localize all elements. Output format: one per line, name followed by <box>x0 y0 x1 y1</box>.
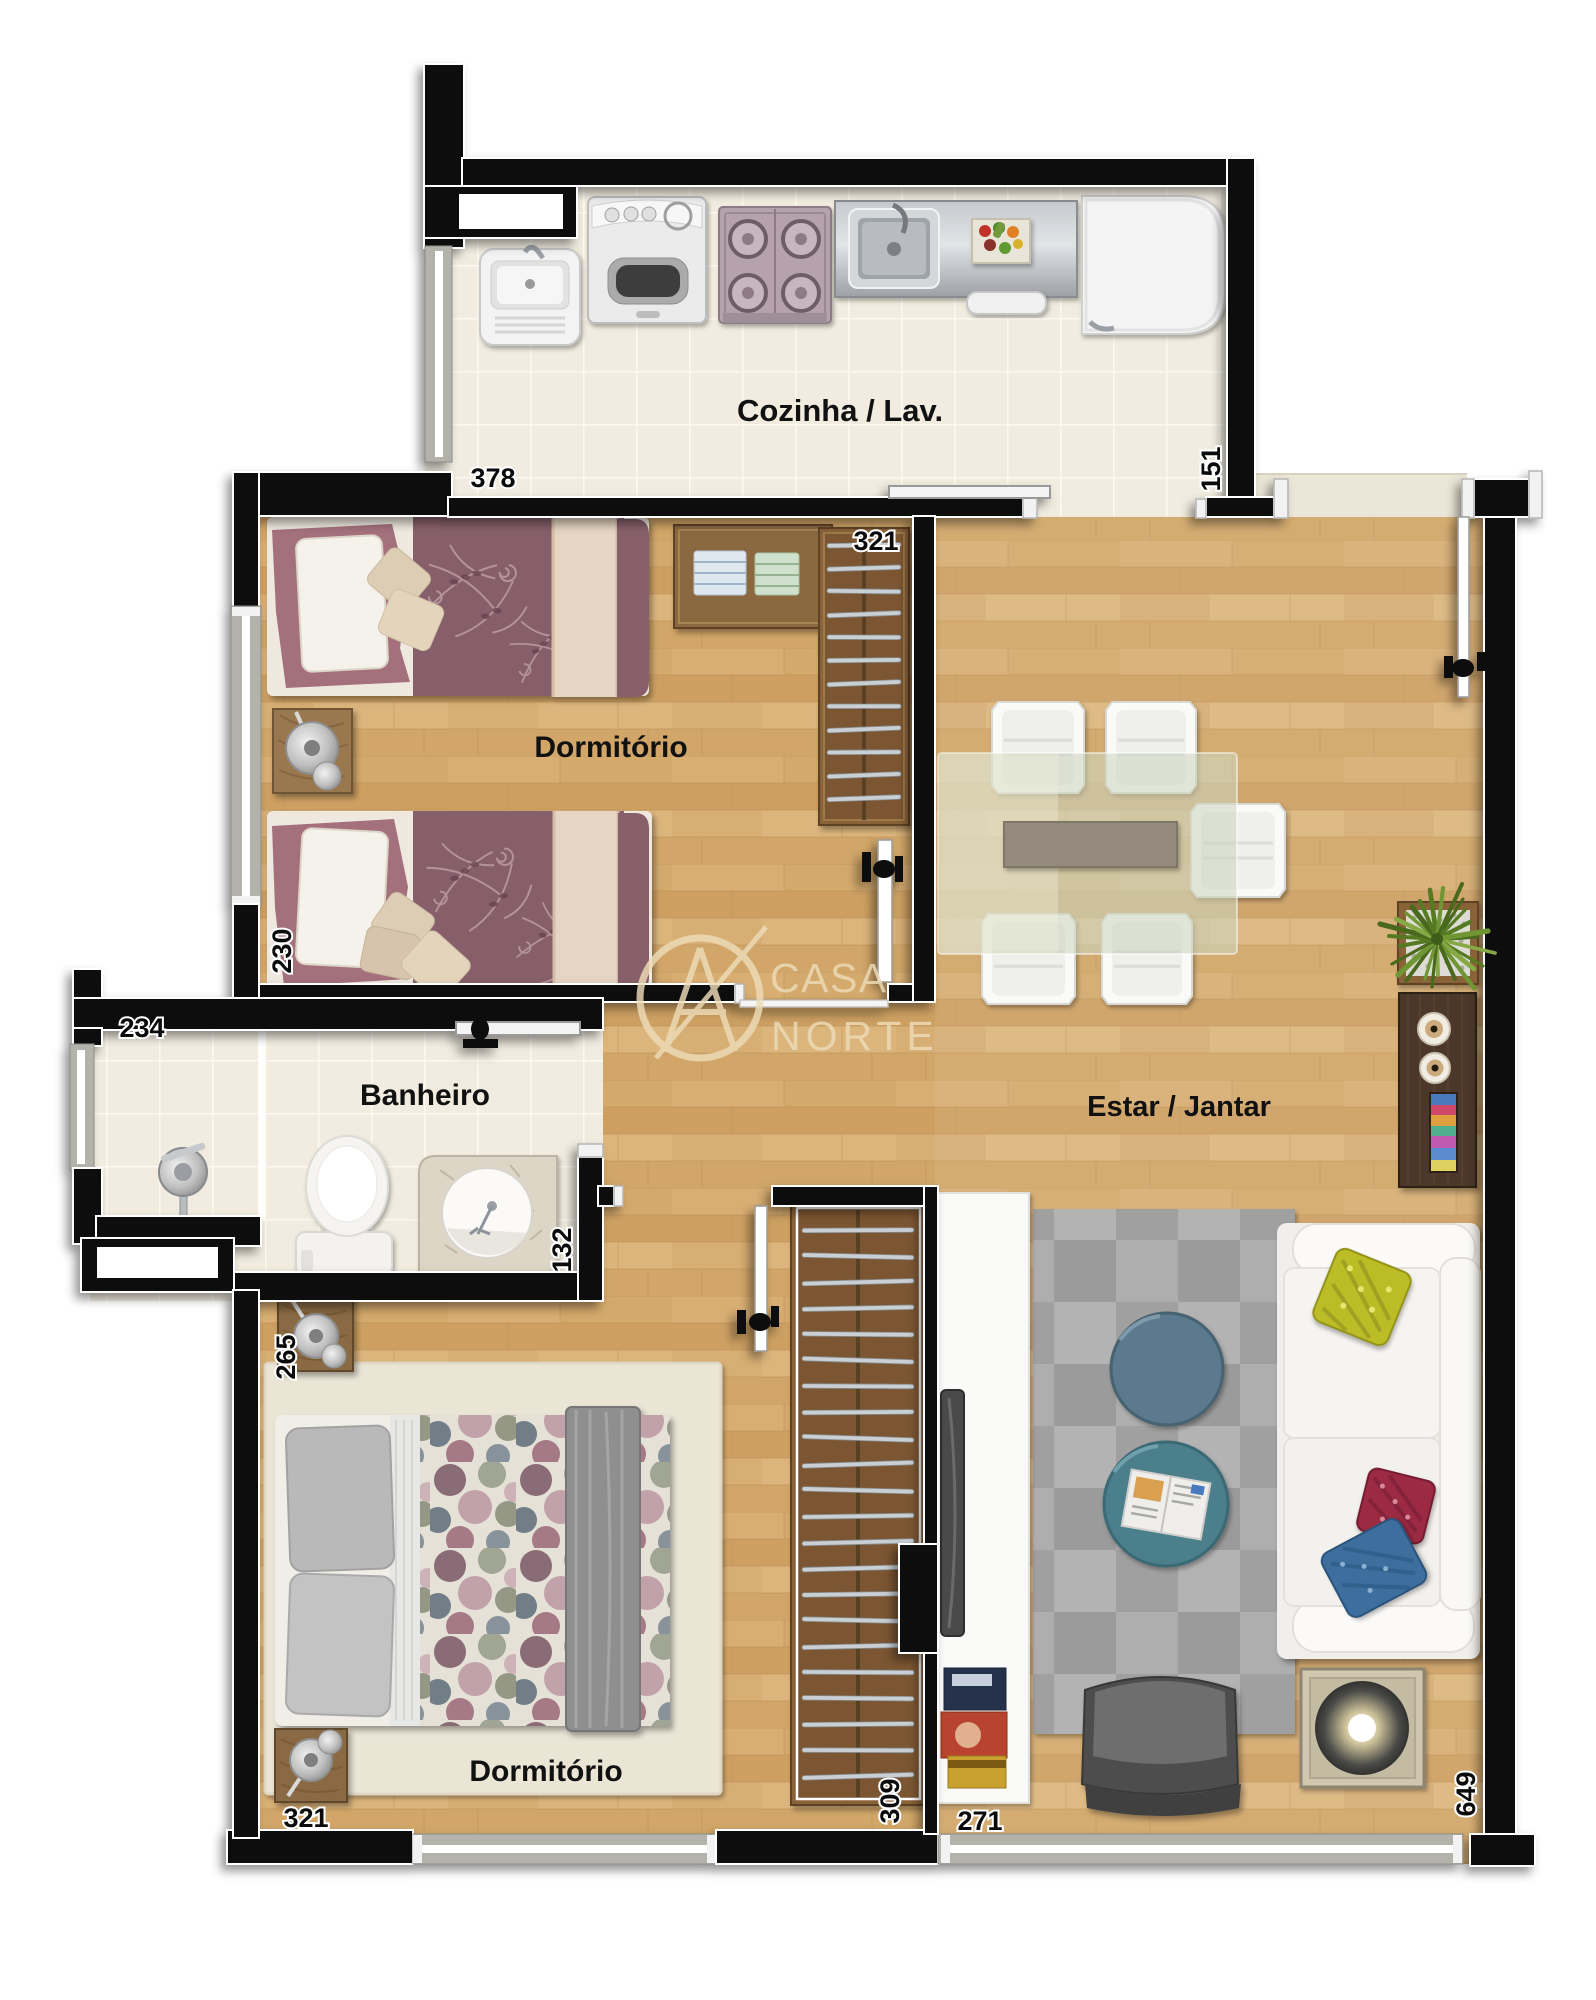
svg-text:271: 271 <box>957 1806 1002 1836</box>
svg-text:CASA: CASA <box>770 955 888 1001</box>
svg-text:NORTE: NORTE <box>771 1013 939 1059</box>
svg-text:321: 321 <box>853 526 898 556</box>
svg-text:321: 321 <box>283 1803 328 1833</box>
svg-text:Cozinha / Lav.: Cozinha / Lav. <box>737 393 943 428</box>
svg-text:151: 151 <box>1196 446 1226 491</box>
svg-text:378: 378 <box>470 463 515 493</box>
svg-text:Estar / Jantar: Estar / Jantar <box>1087 1091 1271 1123</box>
svg-text:230: 230 <box>267 928 297 973</box>
svg-text:649: 649 <box>1451 1771 1481 1816</box>
svg-text:132: 132 <box>547 1227 577 1272</box>
svg-text:309: 309 <box>875 1778 905 1823</box>
svg-text:265: 265 <box>271 1334 301 1379</box>
svg-text:Dormitório: Dormitório <box>469 1755 622 1788</box>
svg-text:Dormitório: Dormitório <box>534 731 687 764</box>
svg-text:Banheiro: Banheiro <box>360 1079 490 1112</box>
svg-text:234: 234 <box>119 1013 164 1043</box>
